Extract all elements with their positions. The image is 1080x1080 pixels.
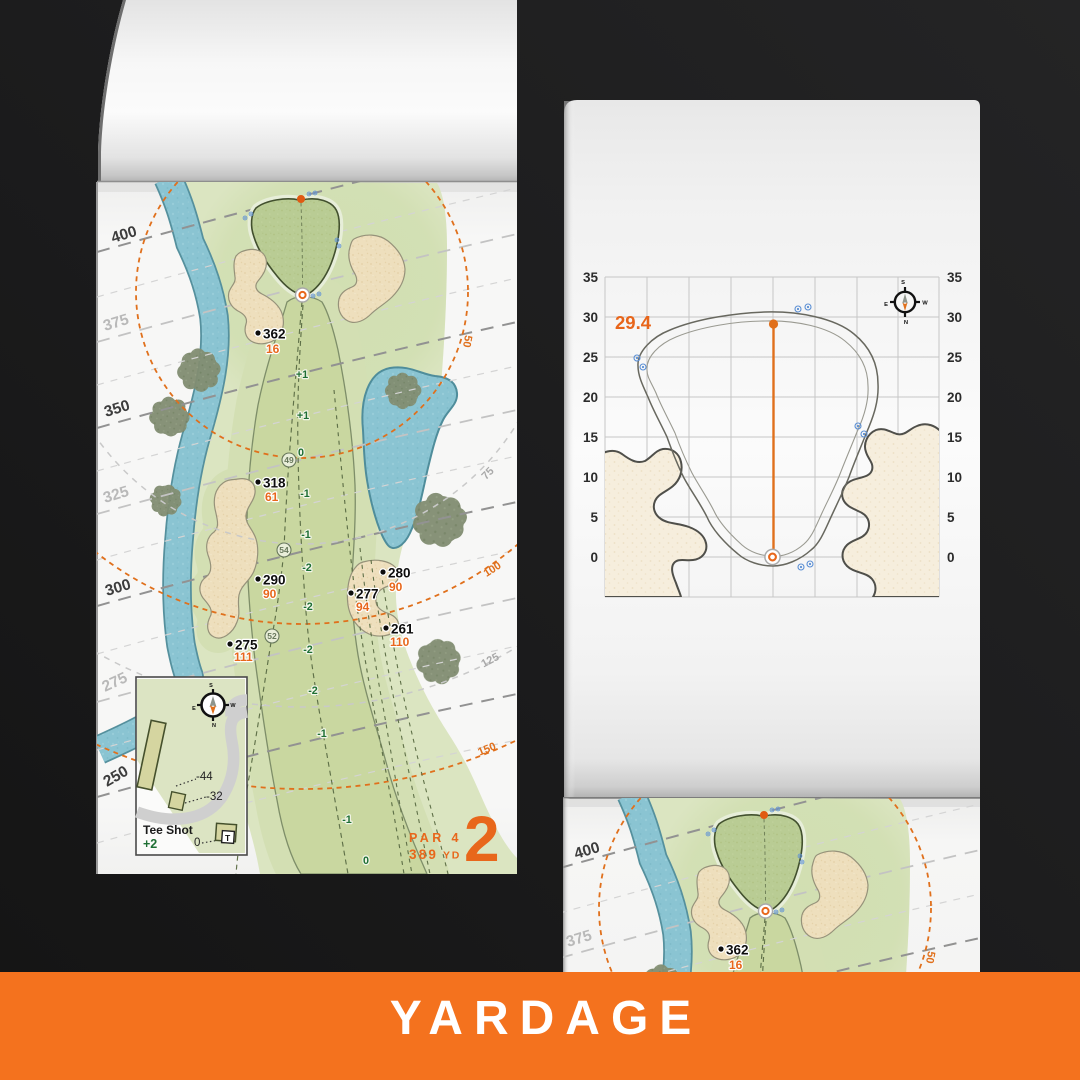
svg-text:5: 5 [947,510,955,525]
svg-text:35: 35 [947,270,963,285]
svg-text:N: N [904,320,908,326]
svg-text:10: 10 [947,470,962,485]
svg-text:5: 5 [590,510,598,525]
svg-text:25: 25 [947,350,963,365]
svg-text:20: 20 [583,390,598,405]
svg-text:0: 0 [590,550,598,565]
svg-text:20: 20 [947,390,962,405]
svg-text:30: 30 [583,310,598,325]
svg-text:W: W [922,301,928,307]
svg-text:29.4: 29.4 [615,312,652,333]
svg-text:25: 25 [583,350,599,365]
svg-text:15: 15 [947,430,963,445]
svg-text:15: 15 [583,430,599,445]
svg-text:30: 30 [947,310,962,325]
svg-text:10: 10 [583,470,598,485]
svg-text:S: S [901,280,905,286]
svg-text:0: 0 [947,550,955,565]
svg-text:35: 35 [583,270,599,285]
svg-text:YARDAGE: YARDAGE [390,992,703,1045]
svg-text:E: E [884,302,888,308]
